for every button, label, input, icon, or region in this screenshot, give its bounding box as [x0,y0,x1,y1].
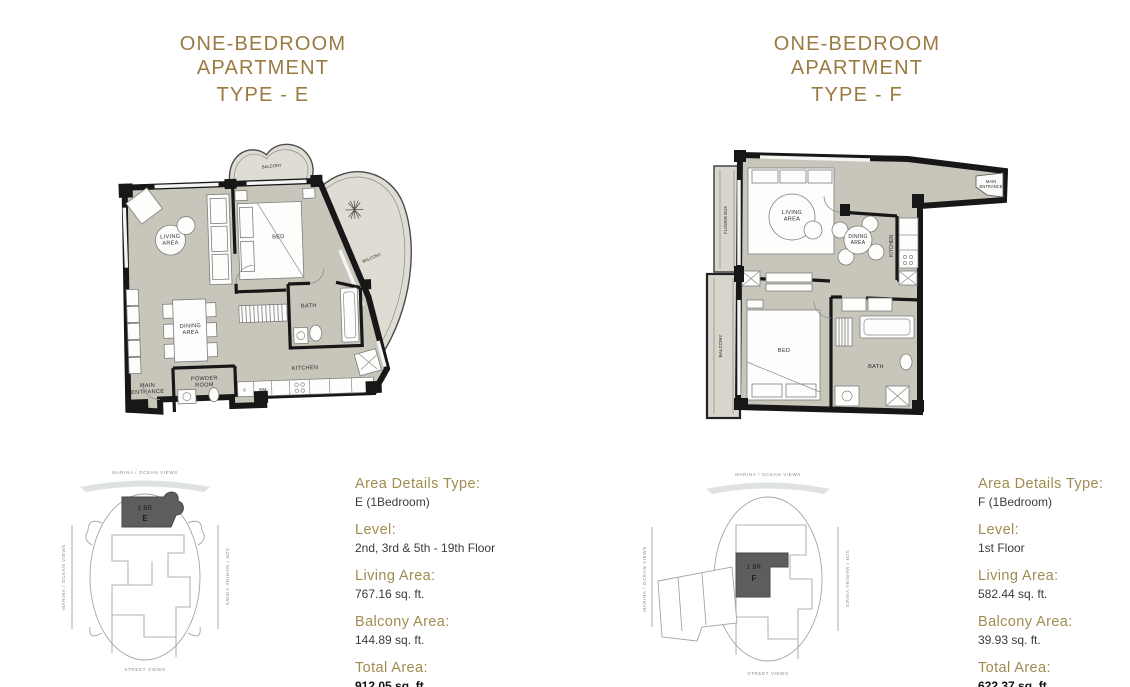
brochure-page: ONE-BEDROOM APARTMENT TYPE - E BALCONY B… [0,0,1130,687]
type-f-title-line2: TYPE - F [707,83,1007,107]
keyplan-f-view-left: MARINA / OCEAN VIEWS [642,546,647,612]
wardrobe [766,273,812,291]
detail-value: 39.93 sq. ft. [978,633,1130,647]
detail-label: Living Area: [978,568,1130,584]
ocean-arc [80,481,210,493]
keyplan-e-view-left: MARINA / OCEAN VIEWS [61,544,66,610]
balcony-label: BALCONY [718,334,724,358]
dining-label: DININGAREA [180,323,202,336]
bath-label: BATH [301,303,317,310]
detail-label: Total Area: [978,660,1130,676]
detail-level: Level: 2nd, 3rd & 5th - 19th Floor [355,522,515,555]
detail-value: 144.89 sq. ft. [355,633,515,647]
keyplan-f-view-bottom: STREET VIEWS [747,671,788,676]
detail-value: 1st Floor [978,541,1130,555]
type-f-floorplan: FLOWER BOX BALCONY MAINENTRANCE [690,140,1012,428]
detail-label: Living Area: [355,568,515,584]
keyplan-e-view-bottom: STREET VIEWS [124,667,165,672]
detail-label: Area Details Type: [355,476,515,492]
keyplan-f-view-top: MARINA / OCEAN VIEWS [735,472,801,477]
detail-value: 912.05 sq. ft. [355,679,515,687]
detail-label: Area Details Type: [978,476,1130,492]
detail-balcony-area: Balcony Area: 39.93 sq. ft. [978,614,1130,647]
detail-label: Balcony Area: [355,614,515,630]
type-f-details: Area Details Type: F (1Bedroom) Level: 1… [978,476,1130,687]
detail-area-type: Area Details Type: F (1Bedroom) [978,476,1130,509]
type-e-keyplan: MARINA / OCEAN VIEWS 1 BR E MARINA / OCE… [52,465,238,677]
keyplan-e-unit-letter: E [142,514,148,523]
detail-value: 2nd, 3rd & 5th - 19th Floor [355,541,515,555]
living-label: LIVINGAREA [160,234,181,247]
detail-value: E (1Bedroom) [355,495,515,509]
kitchen-label: KITCHEN [292,365,319,372]
detail-value: 582.44 sq. ft. [978,587,1130,601]
type-f-title: ONE-BEDROOM APARTMENT TYPE - F [707,32,1007,107]
type-e-details: Area Details Type: E (1Bedroom) Level: 2… [355,476,515,687]
type-e-title-line1: ONE-BEDROOM APARTMENT [113,32,413,81]
bath-label: BATH [868,364,884,370]
keyplan-f-unit-type: 1 BR [747,565,762,571]
flower-box-label: FLOWER BOX [723,206,728,234]
detail-value: F (1Bedroom) [978,495,1130,509]
detail-label: Total Area: [355,660,515,676]
living-label: LIVINGAREA [782,210,802,222]
detail-living-area: Living Area: 582.44 sq. ft. [978,568,1130,601]
keyplan-e-unit-type: 1 BR [138,506,153,512]
ocean-arc [706,483,830,495]
keyplan-f-view-right: SZR / MARINA VIEWS [845,550,850,608]
keyplan-e-view-right: SZR / MARINA VIEWS [225,548,230,606]
detail-area-type: Area Details Type: E (1Bedroom) [355,476,515,509]
type-f-balcony: BALCONY [707,274,740,418]
type-f-flower-box: FLOWER BOX [714,166,740,272]
keyplan-e-view-top: MARINA / OCEAN VIEWS [112,470,178,475]
detail-label: Balcony Area: [978,614,1130,630]
type-e-floorplan: BALCONY BALCONY [110,133,418,431]
kitchen-counter [899,218,918,268]
type-f-title-line1: ONE-BEDROOM APARTMENT [707,32,1007,81]
kitchen-label: KITCHEN [889,235,895,257]
closet-column [126,289,141,373]
detail-balcony-area: Balcony Area: 144.89 sq. ft. [355,614,515,647]
bed-label: BED [272,234,285,240]
detail-value: 767.16 sq. ft. [355,587,515,601]
detail-label: Level: [355,522,515,538]
detail-living-area: Living Area: 767.16 sq. ft. [355,568,515,601]
type-e-title: ONE-BEDROOM APARTMENT TYPE - E [113,32,413,107]
keyplan-f-unit-letter: F [752,574,757,583]
wardrobe [239,304,288,323]
detail-total-area: Total Area: 912.05 sq. ft. [355,660,515,687]
detail-value: 622.37 sq. ft. [978,679,1130,687]
type-f-keyplan: MARINA / OCEAN VIEWS 1 BR F MARINA / OCE… [640,467,866,681]
dining-label: DININGAREA [848,234,867,246]
detail-label: Level: [978,522,1130,538]
type-e-title-line2: TYPE - E [113,83,413,107]
detail-total-area: Total Area: 622.37 sq. ft. [978,660,1130,687]
detail-level: Level: 1st Floor [978,522,1130,555]
bed-label: BED [778,348,790,354]
